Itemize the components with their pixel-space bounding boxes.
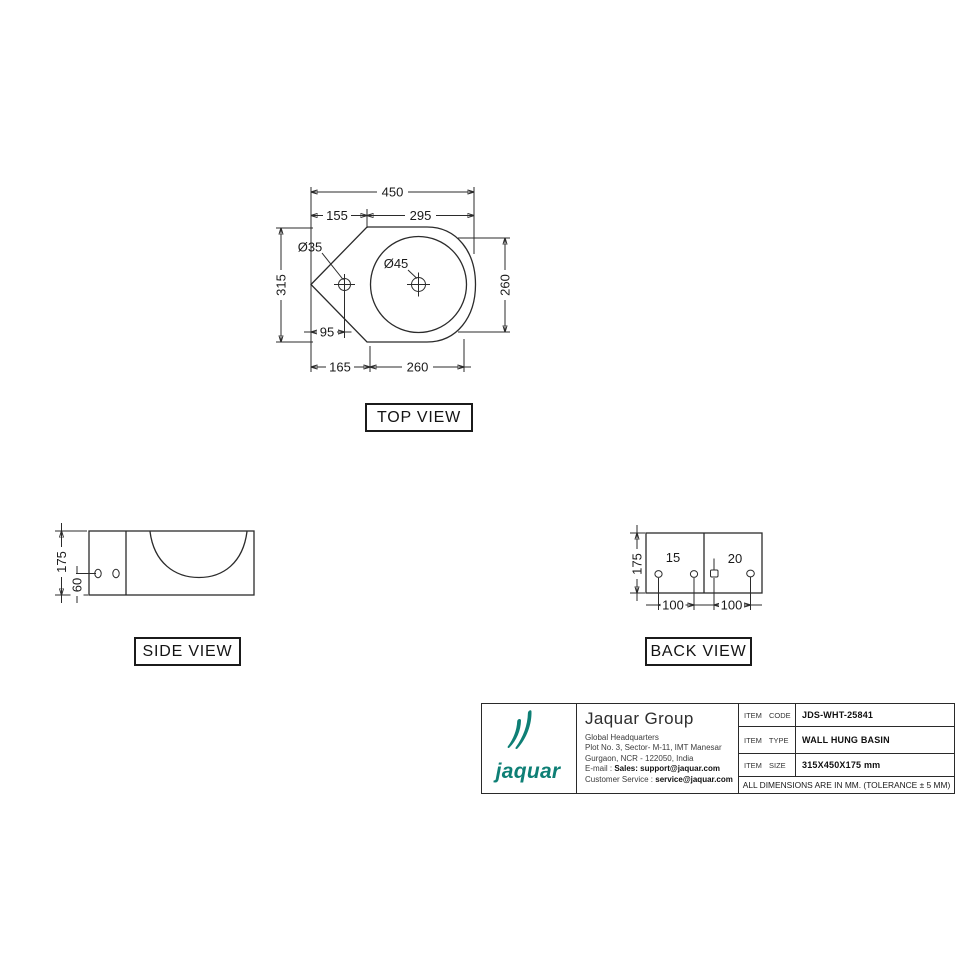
item-size-label: ITEM SIZE xyxy=(739,754,796,776)
side-bowl-profile xyxy=(150,532,247,578)
dim-left-width: 155 xyxy=(326,208,348,223)
top-view-label-text: TOP VIEW xyxy=(377,409,461,427)
drain-hole xyxy=(407,273,430,297)
table-row: ITEM TYPE WALL HUNG BASIN xyxy=(739,727,954,754)
dim-bowl-left-offset: 165 xyxy=(329,360,351,375)
jaquar-logo-icon: jaquar xyxy=(482,704,575,792)
company-name: Jaquar Group xyxy=(585,709,738,729)
dim-back-hole-15: 15 xyxy=(666,550,680,565)
side-mount-hole-2 xyxy=(113,569,119,577)
dim-back-span-left: 100 xyxy=(662,598,684,613)
dim-bowl-height: 260 xyxy=(498,274,513,296)
company-service: Customer Service : service@jaquar.com xyxy=(585,775,738,785)
back-hole-1 xyxy=(655,571,662,578)
brand-logo: jaquar xyxy=(482,704,577,793)
leader-hole-15 xyxy=(659,558,665,571)
dim-overall-width: 450 xyxy=(382,185,404,200)
service-value: service@jaquar.com xyxy=(655,775,733,784)
company-email: E-mail : Sales: support@jaquar.com xyxy=(585,764,738,774)
email-label: E-mail : xyxy=(585,764,614,773)
company-address-line1: Global Headquarters xyxy=(585,733,738,743)
item-type-value: WALL HUNG BASIN xyxy=(796,727,954,753)
email-value: Sales: support@jaquar.com xyxy=(614,764,720,773)
leader-drain xyxy=(408,270,417,279)
dim-tap-offset: 95 xyxy=(320,325,334,340)
dim-right-width: 295 xyxy=(410,208,432,223)
back-hole-4 xyxy=(747,570,755,577)
dim-drain-dia: Ø45 xyxy=(384,256,409,271)
table-row: ITEM CODE JDS-WHT-25841 xyxy=(739,704,954,727)
side-view-drawing: 175 60 xyxy=(54,523,254,603)
back-view-label: BACK VIEW xyxy=(645,637,752,666)
item-type-label: ITEM TYPE xyxy=(739,727,796,753)
dim-bowl-width: 260 xyxy=(407,360,429,375)
service-label: Customer Service : xyxy=(585,775,655,784)
company-address-line3: Gurgaon, NCR - 122050, India xyxy=(585,754,738,764)
side-body-outline xyxy=(89,531,254,595)
tap-hole xyxy=(334,274,355,295)
back-view-drawing: 15 20 100 100 175 xyxy=(630,525,763,613)
item-code-label: ITEM CODE xyxy=(739,704,796,726)
dim-tap-hole-dia: Ø35 xyxy=(298,240,323,255)
dim-side-height: 175 xyxy=(54,551,69,573)
side-view-label: SIDE VIEW xyxy=(134,637,241,666)
dim-side-hole-height: 60 xyxy=(70,578,85,592)
dim-back-hole-20: 20 xyxy=(728,551,742,566)
back-hole-3 xyxy=(711,570,719,577)
dim-back-span-right: 100 xyxy=(721,598,743,613)
back-hole-2 xyxy=(690,571,697,578)
tolerance-note: ALL DIMENSIONS ARE IN MM. (TOLERANCE ± 5… xyxy=(739,777,954,792)
item-size-value: 315X450X175 mm xyxy=(796,754,954,776)
item-table: ITEM CODE JDS-WHT-25841 ITEM TYPE WALL H… xyxy=(739,704,954,793)
top-view-drawing: 450 155 295 Ø35 Ø45 315 260 95 165 260 xyxy=(274,185,513,375)
title-block: jaquar Jaquar Group Global Headquarters … xyxy=(481,703,955,794)
back-view-label-text: BACK VIEW xyxy=(650,643,746,661)
technical-drawing: 450 155 295 Ø35 Ø45 315 260 95 165 260 xyxy=(0,0,960,960)
side-view-label-text: SIDE VIEW xyxy=(143,643,233,661)
dim-depth: 315 xyxy=(274,274,289,296)
dim-back-height: 175 xyxy=(630,553,645,575)
table-row: ITEM SIZE 315X450X175 mm xyxy=(739,754,954,777)
top-view-label: TOP VIEW xyxy=(365,403,473,432)
drawing-canvas: 450 155 295 Ø35 Ø45 315 260 95 165 260 xyxy=(0,0,960,960)
company-address-line2: Plot No. 3, Sector- M-11, IMT Manesar xyxy=(585,743,738,753)
company-info: Jaquar Group Global Headquarters Plot No… xyxy=(577,704,739,793)
item-code-value: JDS-WHT-25841 xyxy=(796,704,954,726)
leader-tap-hole xyxy=(322,253,344,280)
logo-wordmark: jaquar xyxy=(493,760,562,783)
